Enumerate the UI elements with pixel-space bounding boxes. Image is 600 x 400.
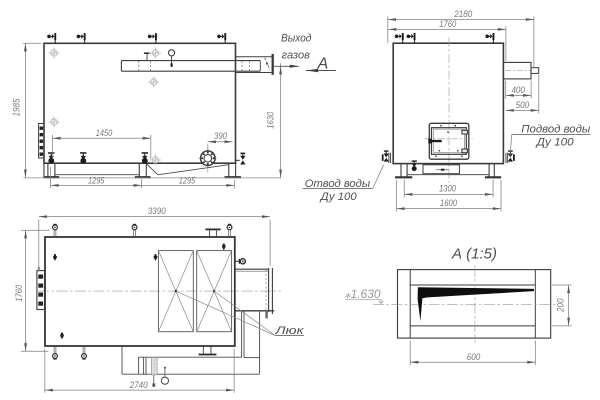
svg-text:600: 600	[467, 352, 481, 363]
svg-text:200: 200	[555, 298, 566, 313]
svg-text:Выход: Выход	[281, 33, 312, 45]
svg-text:Ду 100: Ду 100	[534, 137, 574, 149]
svg-text:1760: 1760	[439, 19, 457, 30]
svg-text:2740: 2740	[129, 380, 148, 391]
svg-text:1600: 1600	[440, 198, 458, 209]
svg-text:1295: 1295	[179, 175, 196, 186]
svg-text:1450: 1450	[96, 128, 113, 139]
svg-text:Ду 100: Ду 100	[319, 191, 358, 203]
svg-text:1300: 1300	[439, 184, 457, 195]
svg-text:1295: 1295	[88, 175, 105, 186]
svg-text:1630: 1630	[265, 111, 276, 129]
svg-text:1760: 1760	[14, 284, 25, 302]
svg-text:газов: газов	[282, 49, 310, 61]
svg-text:500: 500	[516, 100, 530, 111]
svg-text:3390: 3390	[148, 206, 167, 217]
svg-text:1985: 1985	[11, 98, 22, 117]
svg-text:⁎1.630: ⁎1.630	[345, 287, 381, 301]
svg-text:2180: 2180	[453, 9, 472, 20]
svg-text:400: 400	[511, 85, 525, 96]
svg-text:А (1:5): А (1:5)	[451, 246, 497, 263]
svg-text:Отвод воды: Отвод воды	[305, 178, 370, 190]
svg-text:390: 390	[214, 131, 228, 142]
svg-text:А: А	[317, 55, 329, 72]
svg-text:Подвод воды: Подвод воды	[521, 124, 590, 136]
